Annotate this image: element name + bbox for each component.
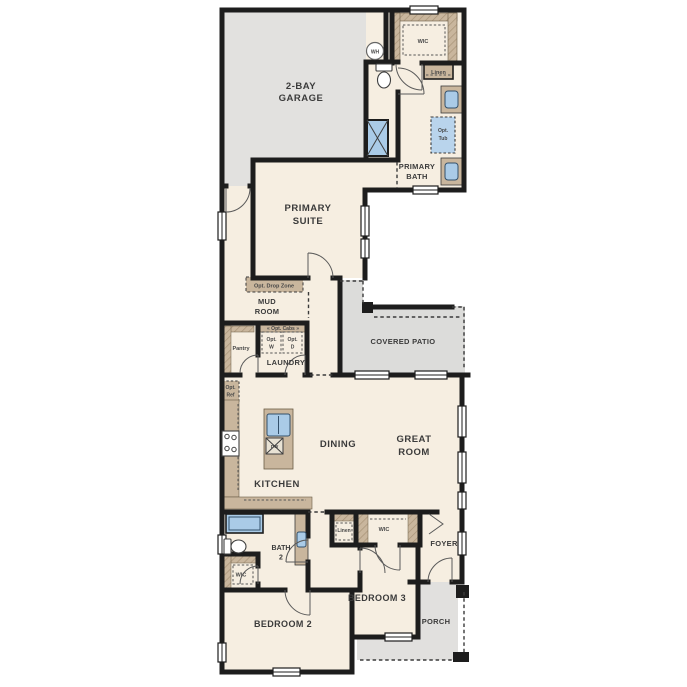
window <box>385 633 412 641</box>
opt-dryer-label-2: D <box>291 345 295 351</box>
laundry-label: LAUNDRY <box>267 358 306 367</box>
bathtub-icon <box>226 514 263 533</box>
opt-washer-label-2: W <box>269 345 274 351</box>
toilet-icon <box>224 539 246 554</box>
foyer-label: FOYER <box>430 539 458 548</box>
opt-tub-label-1: Opt. <box>438 128 449 134</box>
window <box>415 371 447 379</box>
window <box>361 239 369 258</box>
bath2-label-2: 2 <box>279 555 283 562</box>
bath-sink-icon <box>445 163 458 180</box>
patio-post <box>362 302 373 313</box>
dishwasher-label: DW <box>271 444 279 449</box>
great-room-label-2: ROOM <box>398 447 430 458</box>
drop-zone-label: Opt. Drop Zone <box>254 284 294 290</box>
window <box>458 532 466 555</box>
window <box>218 643 226 662</box>
primary-bath-label-2: BATH <box>406 172 427 181</box>
bedroom3-label: BEDROOM 3 <box>348 593 406 603</box>
porch-post-top <box>456 585 469 598</box>
water-heater-label: WH <box>371 50 380 56</box>
bedroom2-label: BEDROOM 2 <box>254 619 312 629</box>
opt-tub-label-2: Tub <box>439 136 448 142</box>
bath2-label-1: BATH <box>272 545 291 552</box>
garage-label-1: 2-BAY <box>286 81 316 92</box>
bedroom3-wic-label: WIC <box>379 527 390 533</box>
bath2-sink-icon <box>297 532 306 547</box>
bedroom2-floor <box>222 590 352 672</box>
opt-cabs-label: « Opt. Cabs » <box>267 326 299 332</box>
great-room-label-1: GREAT <box>396 434 431 445</box>
window <box>458 452 466 483</box>
floor-plan: 2-BAY GARAGE WH WIC Linen Opt. Tub PRIMA… <box>0 0 687 687</box>
mud-room-label-2: ROOM <box>255 307 280 316</box>
linen-primary-label: Linen <box>431 70 446 76</box>
shower-icon <box>367 120 388 156</box>
window <box>410 6 438 14</box>
floor-plan-svg: 2-BAY GARAGE WH WIC Linen Opt. Tub PRIMA… <box>0 0 687 687</box>
opt-washer-label-1: Opt. <box>267 337 278 343</box>
opt-ref-label-2: Ref <box>226 393 234 399</box>
window <box>355 371 389 379</box>
pantry-label: Pantry <box>232 346 250 352</box>
porch-post-bottom <box>453 652 469 662</box>
primary-suite-label-1: PRIMARY <box>285 203 332 214</box>
stove-icon <box>222 431 239 456</box>
window <box>218 212 226 240</box>
primary-suite-label-2: SUITE <box>293 216 323 227</box>
window <box>413 186 438 194</box>
window <box>458 406 466 437</box>
optional-tub <box>431 117 455 153</box>
window <box>273 668 300 676</box>
porch-label: PORCH <box>422 617 451 626</box>
primary-wic-label: WIC <box>418 39 429 45</box>
window <box>458 492 466 509</box>
kitchen-label: KITCHEN <box>254 479 300 490</box>
bath-sink-icon <box>445 91 458 108</box>
mud-room-label-1: MUD <box>258 297 276 306</box>
toilet-icon <box>376 64 392 88</box>
covered-patio-label: COVERED PATIO <box>371 337 436 346</box>
opt-ref-label-1: Opt. <box>226 385 237 391</box>
window <box>361 206 369 236</box>
bedroom2-wic-label: WIC <box>236 573 247 579</box>
opt-dryer-label-1: Opt. <box>288 337 299 343</box>
patio-floor-finger <box>340 280 363 375</box>
linen-hall-label: Linen <box>337 528 350 534</box>
kitchen-sink-icon <box>267 414 290 436</box>
primary-bath-label-1: PRIMARY <box>399 162 435 171</box>
dining-label: DINING <box>320 439 356 450</box>
garage-label-2: GARAGE <box>279 93 324 104</box>
